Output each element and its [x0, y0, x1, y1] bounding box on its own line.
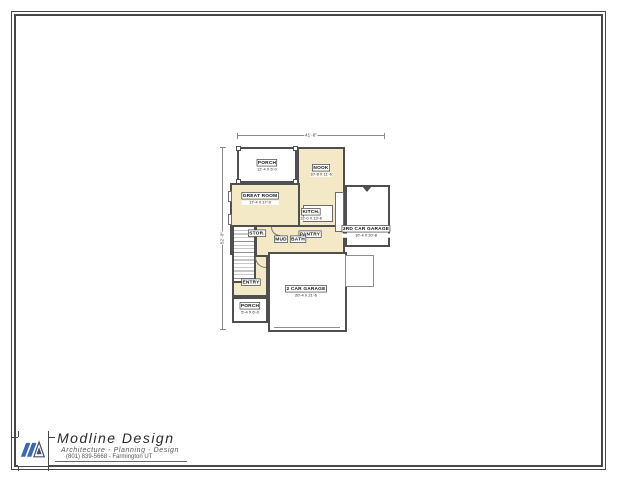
room-label: BATH: [290, 233, 306, 244]
room-label: 2 CAR GARAGE20'-4 X 21'-6: [285, 282, 326, 298]
room-dimensions: 5'-4 X 6'-0: [240, 311, 261, 315]
room-label: PORCH12'-4 X 6'-0: [257, 156, 278, 172]
room-name: 2 CAR GARAGE: [285, 285, 326, 292]
room-name: GREAT ROOM: [242, 192, 279, 199]
room-name: PORCH: [240, 302, 261, 309]
room-name: NOOK: [312, 164, 330, 171]
room-dimensions: 10'-4 X 20'-8: [342, 234, 391, 238]
floor-plan: 41'-6" 52'-0" PORCH12'-4 X 6'-0NOOK10'-8…: [218, 126, 400, 342]
company-contact: (801) 839-5668 - Farmington UT: [66, 454, 152, 460]
room-name: BATH: [290, 236, 306, 243]
room-label: KITCH.12'-0 X 13'-6: [300, 205, 322, 221]
room-name: KITCH.: [301, 208, 320, 215]
company-tagline: Architecture - Planning - Design: [61, 447, 179, 454]
room-name: 3RD CAR GARAGE: [342, 225, 391, 232]
room-name: STOR.: [248, 230, 266, 237]
company-logo: [18, 437, 48, 466]
room-label: 3RD CAR GARAGE10'-4 X 20'-8: [342, 222, 391, 238]
room-name: MUD: [274, 236, 288, 243]
company-name: Modline Design: [57, 430, 175, 446]
room-dimensions: 10'-8 X 11'-6: [310, 173, 332, 177]
room-label: PORCH5'-4 X 6'-0: [240, 299, 261, 315]
room-dimensions: 12'-4 X 6'-0: [257, 168, 278, 172]
modline-ma-logo-icon: [20, 438, 46, 465]
room-label: ENTRY: [241, 276, 260, 287]
room-dimensions: 17'-4 X 17'-0: [242, 201, 279, 205]
room-label: GREAT ROOM17'-4 X 17'-0: [242, 189, 279, 205]
titleblock-line: [48, 431, 49, 471]
room-name: ENTRY: [241, 279, 260, 286]
room-name: PORCH: [257, 159, 278, 166]
room-labels: PORCH12'-4 X 6'-0NOOK10'-8 X 11'-6GREAT …: [218, 126, 400, 342]
titleblock-rule: [55, 461, 187, 462]
room-label: NOOK10'-8 X 11'-6: [310, 161, 332, 177]
room-dimensions: 12'-0 X 13'-6: [300, 217, 322, 221]
drawing-sheet: 41'-6" 52'-0" PORCH12'-4 X 6'-0NOOK10'-8…: [0, 0, 617, 480]
room-label: STOR.: [248, 227, 266, 238]
room-dimensions: 20'-4 X 21'-6: [285, 294, 326, 298]
room-label: MUD: [274, 233, 288, 244]
